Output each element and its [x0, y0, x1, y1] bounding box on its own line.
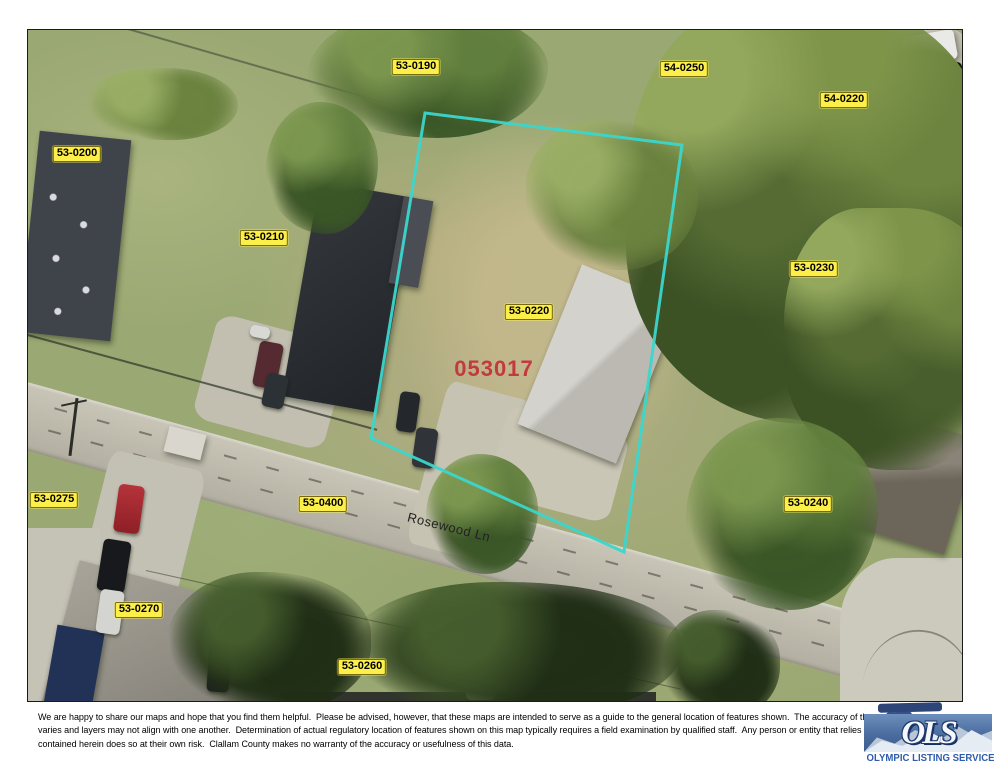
parcel-label: 53-0400 [299, 496, 347, 512]
parcel-label: 53-0200 [53, 146, 101, 162]
parcel-id-label: 053017 [454, 356, 533, 382]
parcel-label: 53-0270 [115, 602, 163, 618]
disclaimer: We are happy to share our maps and hope … [38, 711, 968, 751]
aerial-map: 53-019054-025054-022053-020053-021053-02… [27, 29, 963, 702]
parcel-label: 53-0210 [240, 230, 288, 246]
parcel-label: 53-0190 [392, 59, 440, 75]
page: 53-019054-025054-022053-020053-021053-02… [0, 0, 994, 768]
disclaimer-line-1: We are happy to share our maps and hope … [38, 711, 968, 724]
parcel-label: 53-0275 [30, 492, 78, 508]
parcel-label: 53-0260 [338, 659, 386, 675]
parcel-label: 53-0240 [784, 496, 832, 512]
parcel-label: 54-0220 [820, 92, 868, 108]
ols-logo-name: OLYMPIC LISTING SERVICE [867, 753, 990, 764]
parcel-label: 54-0250 [660, 61, 708, 77]
disclaimer-line-2: varies and layers may not align with one… [38, 724, 968, 737]
ols-logo-image: OLS [864, 714, 992, 752]
ols-logo: OLS OLYMPIC LISTING SERVICE [864, 714, 992, 764]
parcel-label: 53-0230 [790, 261, 838, 277]
disclaimer-line-3: contained herein does so at their own ri… [38, 738, 968, 751]
ols-initials: OLS [864, 715, 992, 751]
parcel-label: 53-0220 [505, 304, 553, 320]
